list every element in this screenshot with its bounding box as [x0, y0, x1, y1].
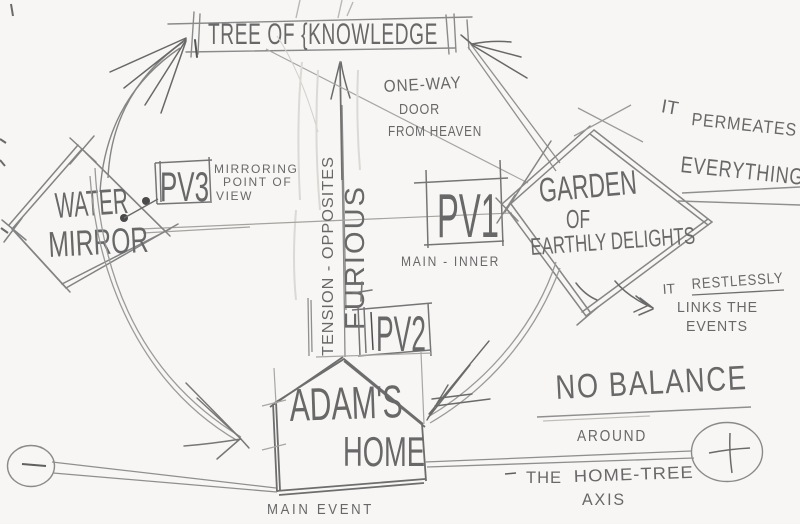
svg-text:ADAM'S: ADAM'S [289, 375, 404, 431]
svg-text:EVENTS: EVENTS [686, 318, 748, 335]
svg-text:WATER: WATER [54, 180, 130, 226]
svg-text:TENSION - OPPOSITES: TENSION - OPPOSITES [320, 156, 337, 356]
svg-text:HOME: HOME [343, 428, 425, 475]
svg-text:PV1: PV1 [437, 182, 499, 251]
svg-text:IT: IT [662, 280, 676, 297]
svg-text:LINKS THE: LINKS THE [677, 299, 758, 316]
svg-text:MIRRORING: MIRRORING [214, 162, 298, 176]
svg-text:DOOR: DOOR [399, 101, 440, 118]
svg-text:MAIN EVENT: MAIN EVENT [267, 501, 374, 518]
svg-text:MIRROR: MIRROR [47, 219, 149, 265]
svg-text:THE: THE [526, 468, 562, 487]
svg-text:MAIN - INNER: MAIN - INNER [401, 253, 500, 269]
svg-text:VIEW: VIEW [216, 189, 253, 203]
svg-text:AXIS: AXIS [582, 490, 626, 509]
svg-text:PV3: PV3 [160, 163, 209, 210]
svg-text:TREE OF {KNOWLEDGE: TREE OF {KNOWLEDGE [208, 18, 438, 51]
svg-text:POINT OF: POINT OF [223, 175, 292, 189]
svg-text:FROM HEAVEN: FROM HEAVEN [388, 123, 482, 140]
svg-text:AROUND: AROUND [577, 428, 647, 445]
